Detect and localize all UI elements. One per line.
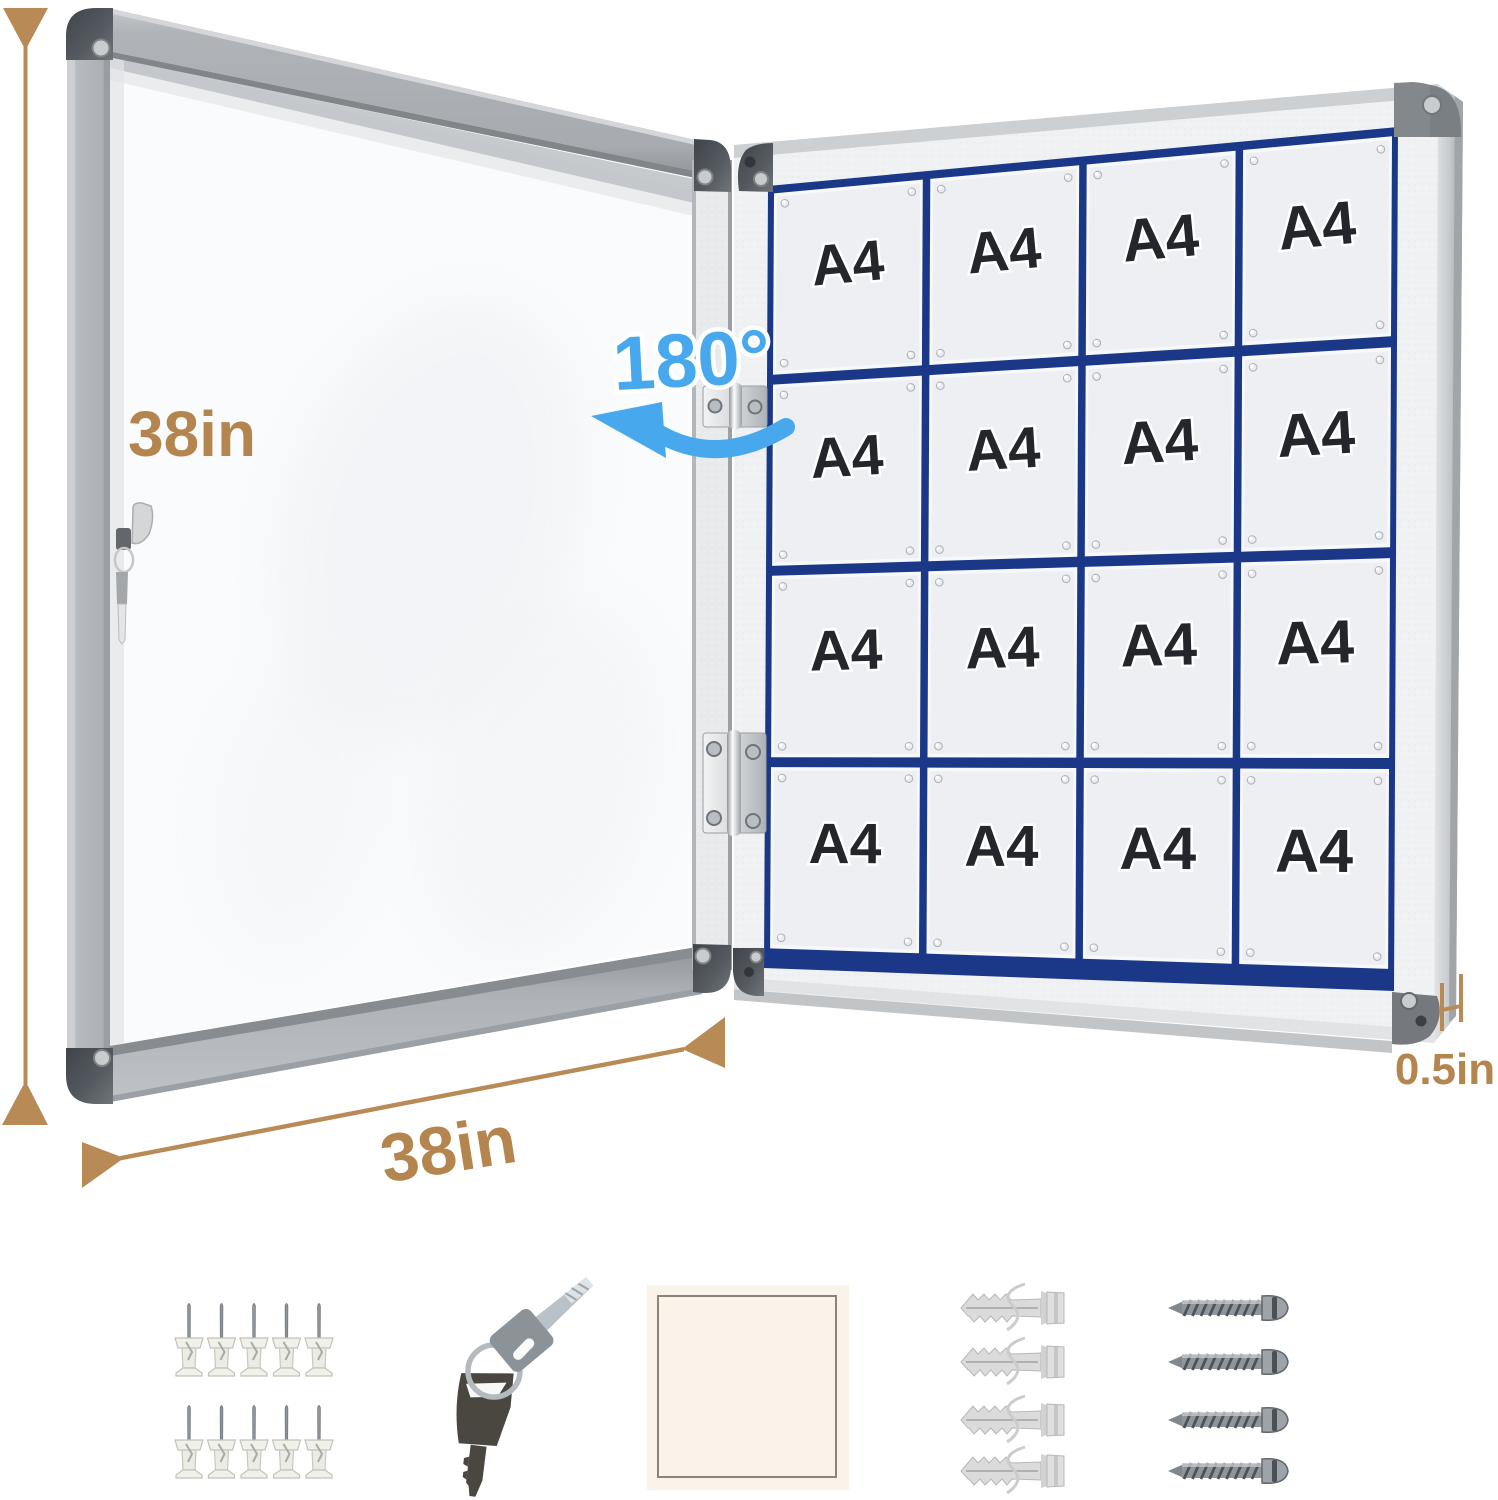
svg-text:A4: A4 [1275,817,1353,885]
svg-text:A4: A4 [964,814,1038,879]
svg-text:A4: A4 [1275,607,1355,677]
svg-text:180°: 180° [611,314,772,407]
svg-text:A4: A4 [809,618,884,684]
svg-text:A4: A4 [1119,610,1198,679]
svg-text:A4: A4 [808,423,885,491]
svg-text:A4: A4 [964,215,1044,287]
svg-text:A4: A4 [808,812,881,876]
svg-text:0.5in: 0.5in [1395,1045,1495,1094]
svg-text:A4: A4 [808,228,887,298]
svg-text:A4: A4 [1275,398,1357,471]
svg-text:A4: A4 [1119,815,1197,882]
svg-text:A4: A4 [1119,406,1200,478]
svg-text:A4: A4 [1275,188,1359,263]
svg-text:A4: A4 [1119,201,1202,275]
svg-text:38in: 38in [128,398,256,470]
svg-text:A4: A4 [964,614,1040,681]
svg-text:A4: A4 [964,415,1042,484]
